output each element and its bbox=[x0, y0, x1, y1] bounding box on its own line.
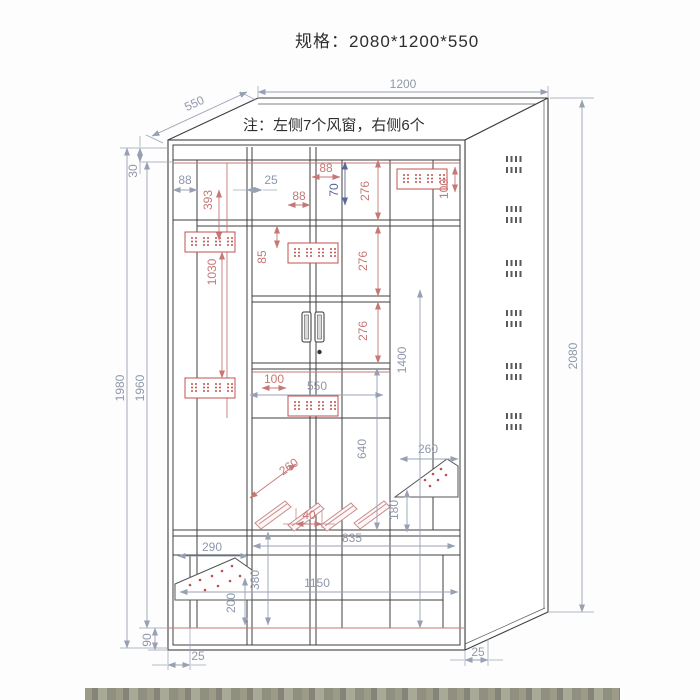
dim-276-mid: 276 bbox=[356, 321, 370, 341]
vent-window bbox=[185, 378, 235, 398]
dim-835: 835 bbox=[342, 531, 362, 545]
dim-260-shelf: 260 bbox=[418, 442, 438, 456]
dim-40: 40 bbox=[302, 508, 316, 522]
dim-1400: 1400 bbox=[395, 346, 409, 373]
cad-drawing-page: 规格：2080*1200*550 注：左侧7个风窗，右侧6个 1200 550 … bbox=[0, 0, 700, 700]
dim-100-mid: 100 bbox=[264, 372, 284, 386]
cabinet-technical-drawing: 规格：2080*1200*550 注：左侧7个风窗，右侧6个 1200 550 … bbox=[0, 0, 700, 700]
dim-85: 85 bbox=[255, 250, 269, 264]
lock-dot bbox=[317, 350, 321, 354]
dim-70: 70 bbox=[327, 183, 341, 197]
dim-25-bottomleft: 25 bbox=[191, 649, 205, 663]
vent-window bbox=[185, 232, 235, 252]
dim-100-topright: 100 bbox=[437, 179, 451, 199]
dim-393: 393 bbox=[201, 190, 215, 210]
dim-depth-550: 550 bbox=[182, 93, 206, 114]
vent-window bbox=[288, 243, 338, 263]
dim-200: 200 bbox=[224, 593, 238, 613]
dim-180: 180 bbox=[387, 500, 401, 520]
dim-640: 640 bbox=[355, 439, 369, 459]
dim-1980: 1980 bbox=[113, 374, 127, 401]
dim-380: 380 bbox=[248, 570, 262, 590]
vent-window bbox=[288, 396, 338, 416]
next-image-edge bbox=[85, 688, 620, 700]
dim-90: 90 bbox=[140, 633, 154, 647]
dim-25-top: 25 bbox=[264, 173, 278, 187]
dim-276-upper: 276 bbox=[356, 251, 370, 271]
dim-276-top: 276 bbox=[358, 181, 372, 201]
dim-1150: 1150 bbox=[304, 576, 330, 590]
dim-1960: 1960 bbox=[133, 374, 147, 401]
dim-width-1200: 1200 bbox=[390, 77, 417, 91]
dim-height-2080: 2080 bbox=[566, 342, 580, 369]
dim-550-cupboard: 550 bbox=[307, 379, 327, 393]
dim-1030: 1030 bbox=[205, 258, 219, 285]
dim-88-left: 88 bbox=[178, 173, 192, 187]
dim-290: 290 bbox=[202, 540, 222, 554]
dim-25-bottomright: 25 bbox=[471, 645, 485, 659]
dim-30: 30 bbox=[126, 164, 140, 178]
vent-note: 注：左侧7个风窗，右侧6个 bbox=[243, 116, 425, 134]
dim-88-mid: 88 bbox=[292, 189, 306, 203]
spec-title: 规格：2080*1200*550 bbox=[295, 32, 479, 51]
dim-88-top: 88 bbox=[319, 161, 333, 175]
